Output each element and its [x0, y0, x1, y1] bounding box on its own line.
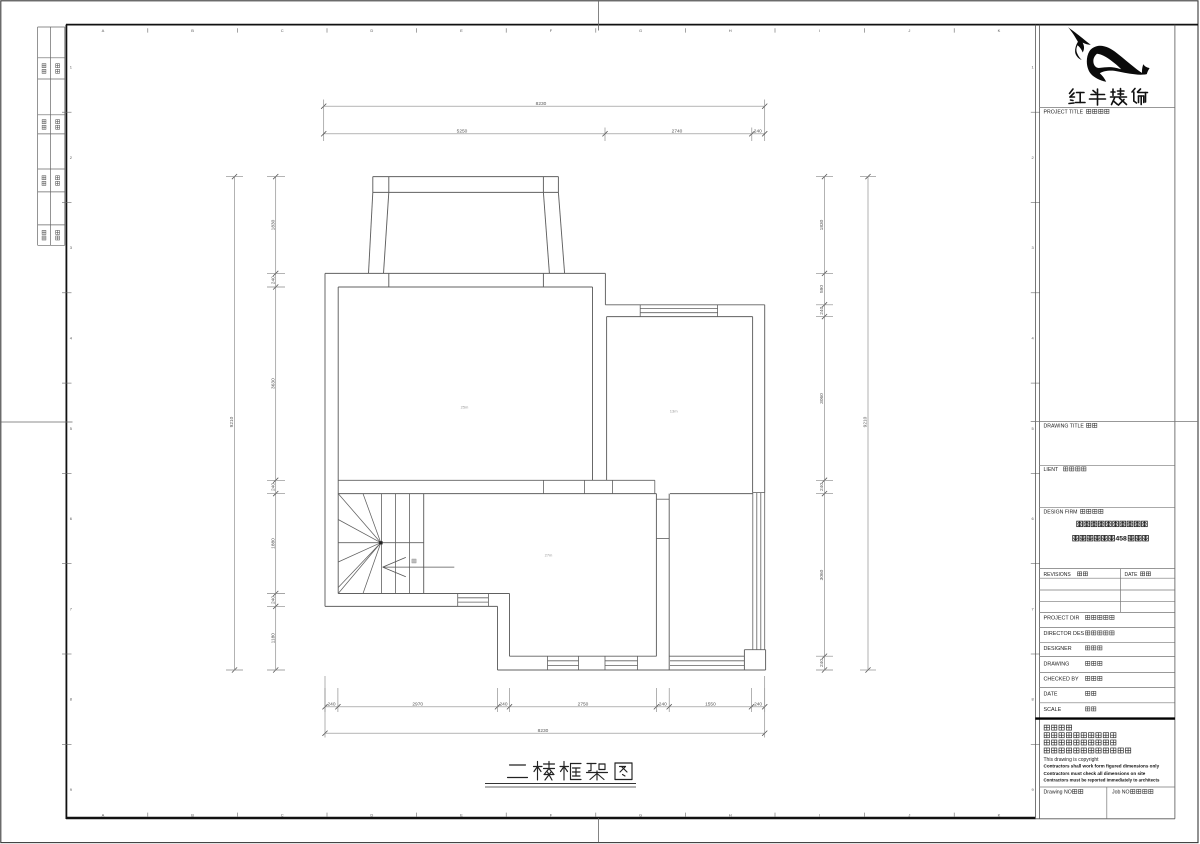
svg-text:2740: 2740: [672, 129, 683, 135]
svg-text:240: 240: [659, 702, 667, 708]
svg-text:240: 240: [270, 276, 276, 284]
svg-text:This drawing is copyright: This drawing is copyright: [1044, 757, 1100, 763]
svg-text:9210: 9210: [229, 416, 235, 427]
svg-text:1550: 1550: [705, 702, 716, 708]
svg-text:9210: 9210: [863, 416, 869, 427]
svg-text:E: E: [460, 812, 463, 817]
svg-text:C: C: [281, 812, 284, 817]
svg-text:13m: 13m: [670, 409, 678, 414]
svg-text:Contractors must check all dim: Contractors must check all dimensions on…: [1044, 771, 1146, 776]
svg-text:1880: 1880: [270, 538, 276, 549]
svg-text:240: 240: [327, 702, 335, 708]
svg-text:240: 240: [270, 596, 276, 604]
svg-text:240: 240: [270, 483, 276, 491]
svg-text:1180: 1180: [270, 633, 276, 644]
svg-text:DRAWING: DRAWING: [1044, 662, 1070, 668]
svg-text:Job NO: Job NO: [1112, 790, 1130, 796]
svg-text:240: 240: [819, 483, 825, 491]
svg-text:DESIGNER: DESIGNER: [1044, 646, 1072, 652]
svg-text:C: C: [281, 28, 284, 33]
svg-text:Contractors must be reported i: Contractors must be reported immediately…: [1044, 778, 1160, 783]
svg-text:3060: 3060: [819, 393, 825, 404]
svg-text:25m: 25m: [461, 405, 469, 410]
svg-text:I: I: [819, 28, 820, 33]
svg-text:DATE: DATE: [1125, 572, 1139, 578]
svg-text:CHECKED BY: CHECKED BY: [1044, 677, 1079, 683]
svg-text:8230: 8230: [536, 101, 547, 107]
svg-text:Contractors shall work form fi: Contractors shall work form figured dime…: [1044, 764, 1160, 769]
svg-text:240: 240: [819, 659, 825, 667]
svg-text:1830: 1830: [270, 219, 276, 230]
svg-text:240: 240: [754, 702, 762, 708]
svg-text:2970: 2970: [412, 702, 423, 708]
svg-text:J: J: [908, 28, 910, 33]
svg-text:I: I: [819, 812, 820, 817]
svg-text:A: A: [102, 812, 105, 817]
svg-text:B: B: [191, 812, 194, 817]
svg-text:2750: 2750: [578, 702, 589, 708]
svg-text:240: 240: [754, 129, 762, 135]
svg-text:5250: 5250: [457, 129, 468, 135]
svg-text:DRAWING TITLE: DRAWING TITLE: [1044, 424, 1085, 430]
svg-text:8230: 8230: [538, 728, 549, 734]
svg-text:B: B: [191, 28, 194, 33]
svg-text:DIRECTOR DES: DIRECTOR DES: [1044, 631, 1085, 637]
svg-text:K: K: [998, 28, 1001, 33]
svg-text:J: J: [908, 812, 910, 817]
svg-text:A: A: [102, 28, 105, 33]
svg-text:G: G: [639, 28, 642, 33]
svg-text:590: 590: [819, 285, 825, 293]
svg-text:G: G: [639, 812, 642, 817]
svg-text:H: H: [729, 812, 732, 817]
svg-text:3630: 3630: [270, 378, 276, 389]
svg-text:H: H: [729, 28, 732, 33]
svg-text:1830: 1830: [819, 219, 825, 230]
svg-text:PROJECT TITLE: PROJECT TITLE: [1044, 110, 1084, 116]
svg-text:Drawing NO: Drawing NO: [1044, 790, 1072, 796]
svg-text:K: K: [998, 812, 1001, 817]
svg-text:3060: 3060: [819, 569, 825, 580]
svg-text:SCALE: SCALE: [1044, 707, 1062, 713]
svg-text:27m: 27m: [545, 553, 553, 558]
svg-text:E: E: [460, 28, 463, 33]
svg-text:LIENT: LIENT: [1044, 467, 1060, 473]
svg-text:240: 240: [819, 306, 825, 314]
svg-text:D: D: [370, 28, 373, 33]
svg-text:DESIGN FIRM: DESIGN FIRM: [1044, 510, 1078, 516]
svg-text:458: 458: [1116, 536, 1128, 543]
svg-text:DATE: DATE: [1044, 692, 1058, 698]
svg-text:240: 240: [499, 702, 507, 708]
svg-text:PROJECT DIR: PROJECT DIR: [1044, 616, 1080, 622]
svg-text:REVISIONS: REVISIONS: [1044, 572, 1072, 578]
svg-text:D: D: [370, 812, 373, 817]
